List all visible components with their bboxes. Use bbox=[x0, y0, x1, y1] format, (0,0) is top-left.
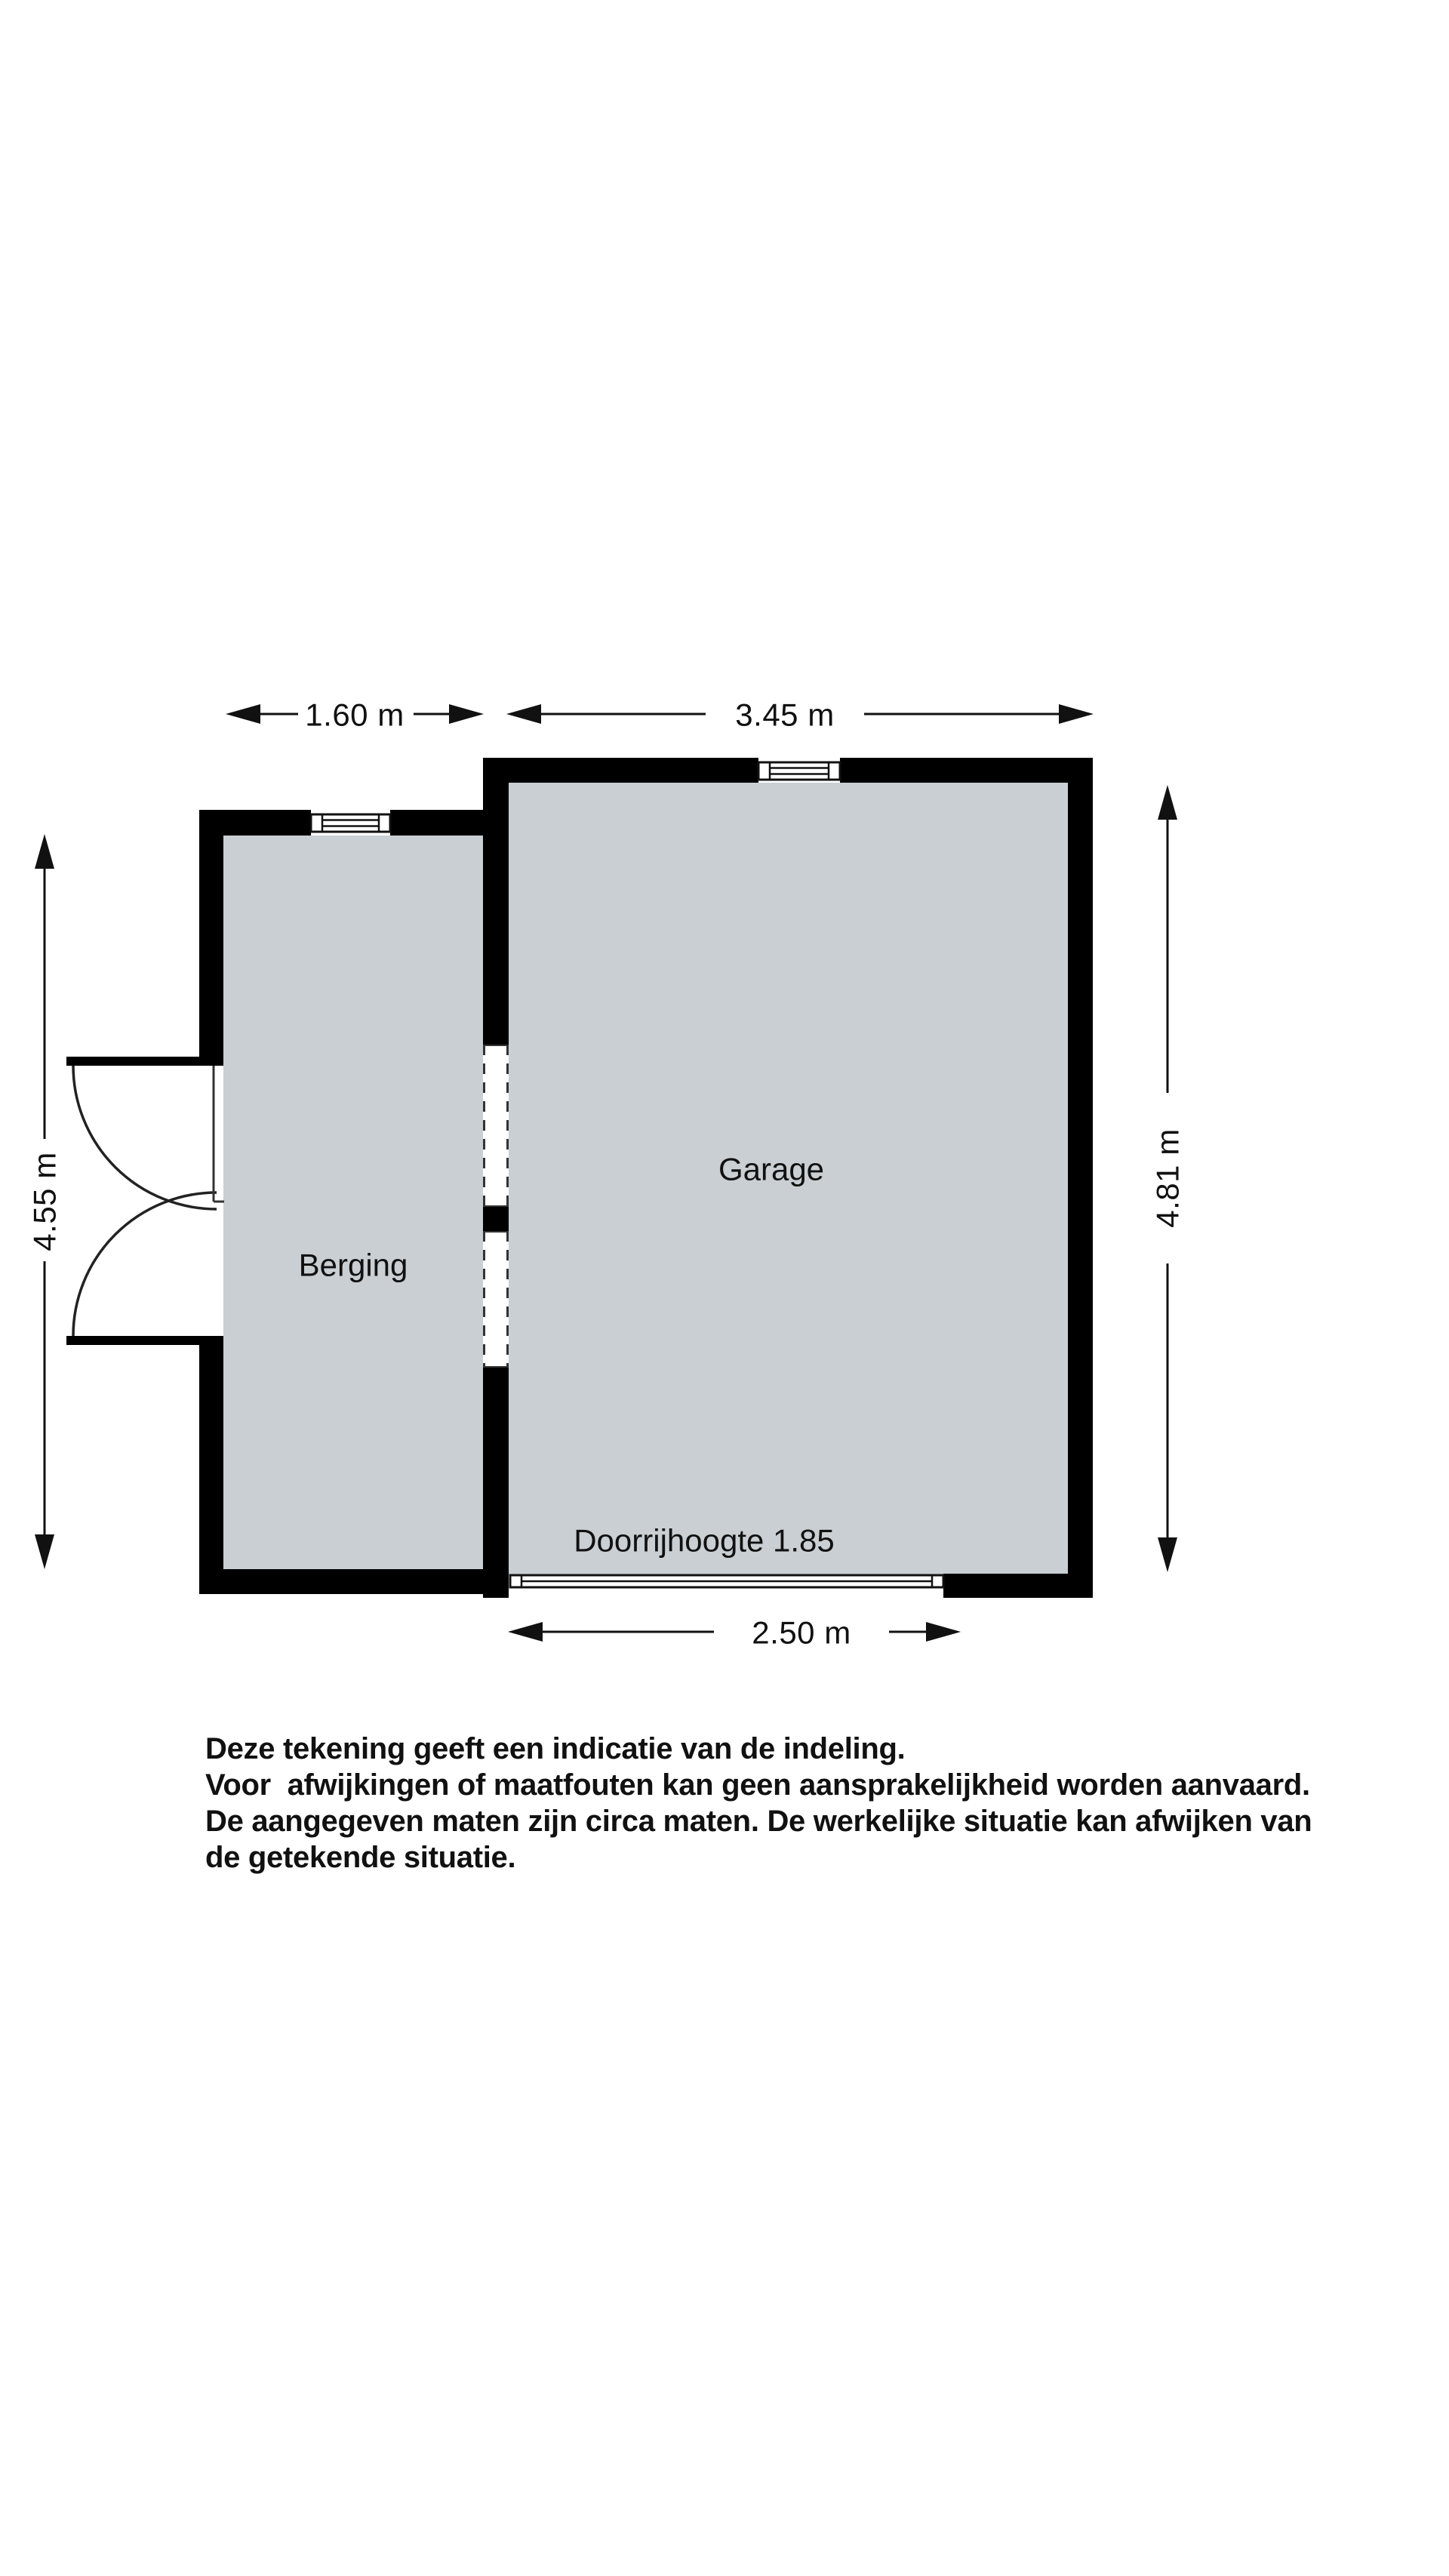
door-leaf-top bbox=[66, 1057, 223, 1066]
arrowhead-up bbox=[1158, 785, 1177, 820]
clearance-note: Doorrijhoogte 1.85 bbox=[574, 1523, 835, 1559]
garage-door bbox=[510, 1575, 943, 1587]
room-label-berging: Berging bbox=[299, 1248, 408, 1283]
berging-left-wall-lower bbox=[199, 1345, 223, 1594]
dimension-berging-width: 1.60 m bbox=[226, 697, 484, 733]
dimension-label-berging-depth: 4.55 m bbox=[27, 1152, 63, 1251]
floorplan-page: 1.60 m 3.45 m 4.55 m 4.81 m bbox=[0, 0, 1449, 2576]
garage-right-wall bbox=[1068, 758, 1093, 1598]
disclaimer-line-1: Deze tekening geeft een indicatie van de… bbox=[205, 1732, 905, 1765]
berging-bottom-wall bbox=[199, 1569, 509, 1594]
dashed-wall-openings bbox=[483, 1045, 509, 1368]
dimension-garage-width: 3.45 m bbox=[506, 697, 1094, 733]
door-swing-arc-top bbox=[73, 1066, 217, 1209]
dimension-garage-door-width: 2.50 m bbox=[508, 1615, 961, 1651]
dividing-wall-middle bbox=[483, 1207, 509, 1231]
arrowhead-right bbox=[1059, 704, 1094, 724]
disclaimer-block: Deze tekening geeft een indicatie van de… bbox=[205, 1732, 1312, 1874]
door-leaf-bottom bbox=[66, 1336, 223, 1345]
dimension-garage-depth: 4.81 m bbox=[1150, 785, 1186, 1572]
berging-left-wall-upper bbox=[199, 810, 223, 1057]
room-label-garage: Garage bbox=[718, 1152, 824, 1187]
arrowhead-up bbox=[35, 834, 54, 869]
dividing-wall-bottom bbox=[483, 1368, 509, 1598]
berging-window bbox=[311, 814, 390, 832]
wall-opening-lower bbox=[483, 1231, 509, 1368]
dimension-label-garage-depth: 4.81 m bbox=[1150, 1128, 1186, 1227]
berging-top-wall-right bbox=[390, 810, 483, 836]
arrowhead-left bbox=[226, 704, 260, 724]
arrowhead-down bbox=[1158, 1537, 1177, 1572]
arrowhead-left bbox=[506, 704, 541, 724]
arrowhead-right bbox=[449, 704, 484, 724]
arrowhead-left bbox=[508, 1622, 543, 1642]
arrowhead-right bbox=[926, 1622, 961, 1642]
door-swing-arc-bottom bbox=[73, 1193, 217, 1336]
arrowhead-down bbox=[35, 1534, 54, 1569]
garage-window bbox=[758, 762, 840, 780]
dividing-wall-top bbox=[483, 758, 509, 1045]
dimension-label-garage-width: 3.45 m bbox=[735, 697, 834, 733]
disclaimer-line-3: De aangegeven maten zijn circa maten. De… bbox=[205, 1805, 1312, 1838]
garage-top-wall-right bbox=[840, 758, 1093, 783]
disclaimer-line-4: de getekende situatie. bbox=[205, 1841, 515, 1874]
berging-floor bbox=[223, 836, 483, 1569]
dimension-label-garage-door-width: 2.50 m bbox=[752, 1615, 851, 1651]
wall-opening-upper bbox=[483, 1045, 509, 1207]
garage-top-wall-left bbox=[483, 758, 758, 783]
dimension-label-berging-width: 1.60 m bbox=[305, 697, 404, 733]
dimension-berging-depth: 4.55 m bbox=[27, 834, 63, 1569]
disclaimer-line-2: Voor afwijkingen of maatfouten kan geen … bbox=[205, 1768, 1310, 1802]
garage-bottom-wall-right bbox=[943, 1574, 1093, 1598]
floorplan-drawing: 1.60 m 3.45 m 4.55 m 4.81 m bbox=[0, 0, 1449, 2576]
berging-double-door bbox=[66, 1057, 224, 1345]
